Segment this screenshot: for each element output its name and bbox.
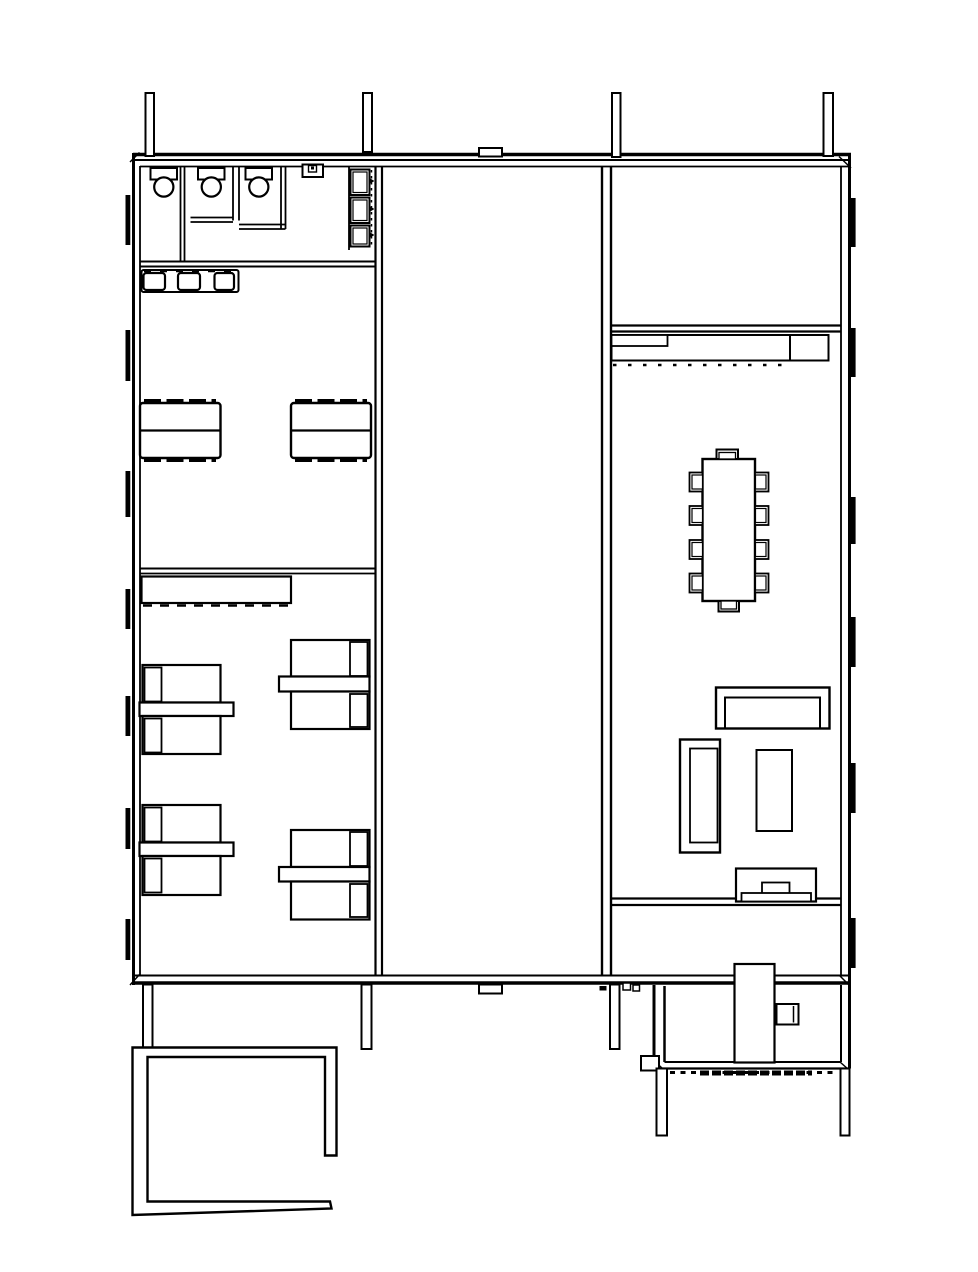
locker-1-inner xyxy=(353,172,367,193)
desk-rb-partition xyxy=(279,867,370,882)
wall-unit-ledge xyxy=(742,893,812,902)
desk-la-chair-top xyxy=(145,668,162,702)
conf-chair-l1-inner xyxy=(692,475,703,489)
window-bar-left-3 xyxy=(126,471,131,517)
window-bar-left-5 xyxy=(126,696,131,736)
roof-post-3 xyxy=(612,93,621,157)
conf-chair-l4-inner xyxy=(692,576,703,590)
floor-plan-page xyxy=(0,0,978,1272)
top-door-tab xyxy=(479,148,502,157)
window-bar-right-5 xyxy=(851,763,856,813)
ground-post-left-1 xyxy=(143,985,153,1049)
wall-fixture-dot xyxy=(311,167,314,170)
toilet-bowl-2 xyxy=(202,177,221,196)
conf-chair-r3-inner xyxy=(756,543,767,557)
window-bar-right-6 xyxy=(851,918,856,968)
vestibule-pillar xyxy=(735,964,775,1063)
desk-ra-chair-top xyxy=(350,642,368,676)
locker-2-inner xyxy=(353,200,367,221)
roof-post-2 xyxy=(363,93,372,152)
roof-post-1 xyxy=(146,93,155,156)
desk-la-chair-bottom xyxy=(145,719,162,753)
window-bar-right-2 xyxy=(851,328,856,377)
desk-lb-partition xyxy=(140,843,234,857)
window-bar-left-6 xyxy=(126,808,131,849)
patio-wall xyxy=(133,1048,337,1216)
sink-basin-3 xyxy=(215,273,235,290)
locker-3-inner xyxy=(353,228,367,244)
hall-bottom-tick xyxy=(600,986,607,991)
window-bar-left-4 xyxy=(126,589,131,629)
door-hinge-tab-a xyxy=(623,983,631,990)
floor-plan-svg xyxy=(0,0,978,1272)
kitchen-appliance xyxy=(790,335,829,361)
window-bar-left-7 xyxy=(126,919,131,960)
kitchen-counter-step xyxy=(612,335,668,346)
conf-chair-bottom-inner xyxy=(721,601,737,609)
ground-post-left-2 xyxy=(362,985,372,1050)
conf-chair-l2-inner xyxy=(692,509,703,523)
bottom-door-tab xyxy=(479,985,502,994)
sofa-vertical-seat xyxy=(690,749,718,843)
desk-rb-chair-bottom xyxy=(350,884,368,917)
conf-chair-top-inner xyxy=(719,453,736,460)
door-hinge-tab-b xyxy=(633,985,640,991)
desk-ra-partition xyxy=(279,677,370,692)
window-bar-right-3 xyxy=(851,497,856,544)
sink-basin-1 xyxy=(144,273,166,290)
conference-table xyxy=(703,459,756,601)
desk-lb-chair-bottom xyxy=(145,859,162,893)
desk-la-partition xyxy=(140,703,234,717)
conf-chair-l3-inner xyxy=(692,543,703,557)
toilet-bowl-1 xyxy=(154,177,173,196)
service-counter xyxy=(142,577,292,604)
window-bar-left-1 xyxy=(126,195,131,245)
desk-rb-chair-top xyxy=(350,832,368,866)
window-bar-right-4 xyxy=(851,617,856,667)
sofa-horizontal xyxy=(716,688,830,729)
desk-lb-chair-top xyxy=(145,808,162,842)
desk-ra-chair-bottom xyxy=(350,694,368,727)
toilet-bowl-3 xyxy=(249,177,268,196)
conf-chair-r2-inner xyxy=(756,509,767,523)
roof-post-4 xyxy=(824,93,834,156)
vestibule-leg-left xyxy=(657,1069,668,1136)
window-bar-right-1 xyxy=(851,198,856,247)
side-table xyxy=(757,750,793,831)
sink-basin-2 xyxy=(178,273,200,290)
conf-chair-r1-inner xyxy=(756,475,767,489)
vestibule-leg-right xyxy=(841,1069,850,1136)
window-bar-left-2 xyxy=(126,330,131,381)
wall-unit-basin xyxy=(762,883,790,894)
conf-chair-r4-inner xyxy=(756,576,767,590)
vestibule-box xyxy=(777,1004,799,1025)
ground-post-right xyxy=(610,985,620,1050)
